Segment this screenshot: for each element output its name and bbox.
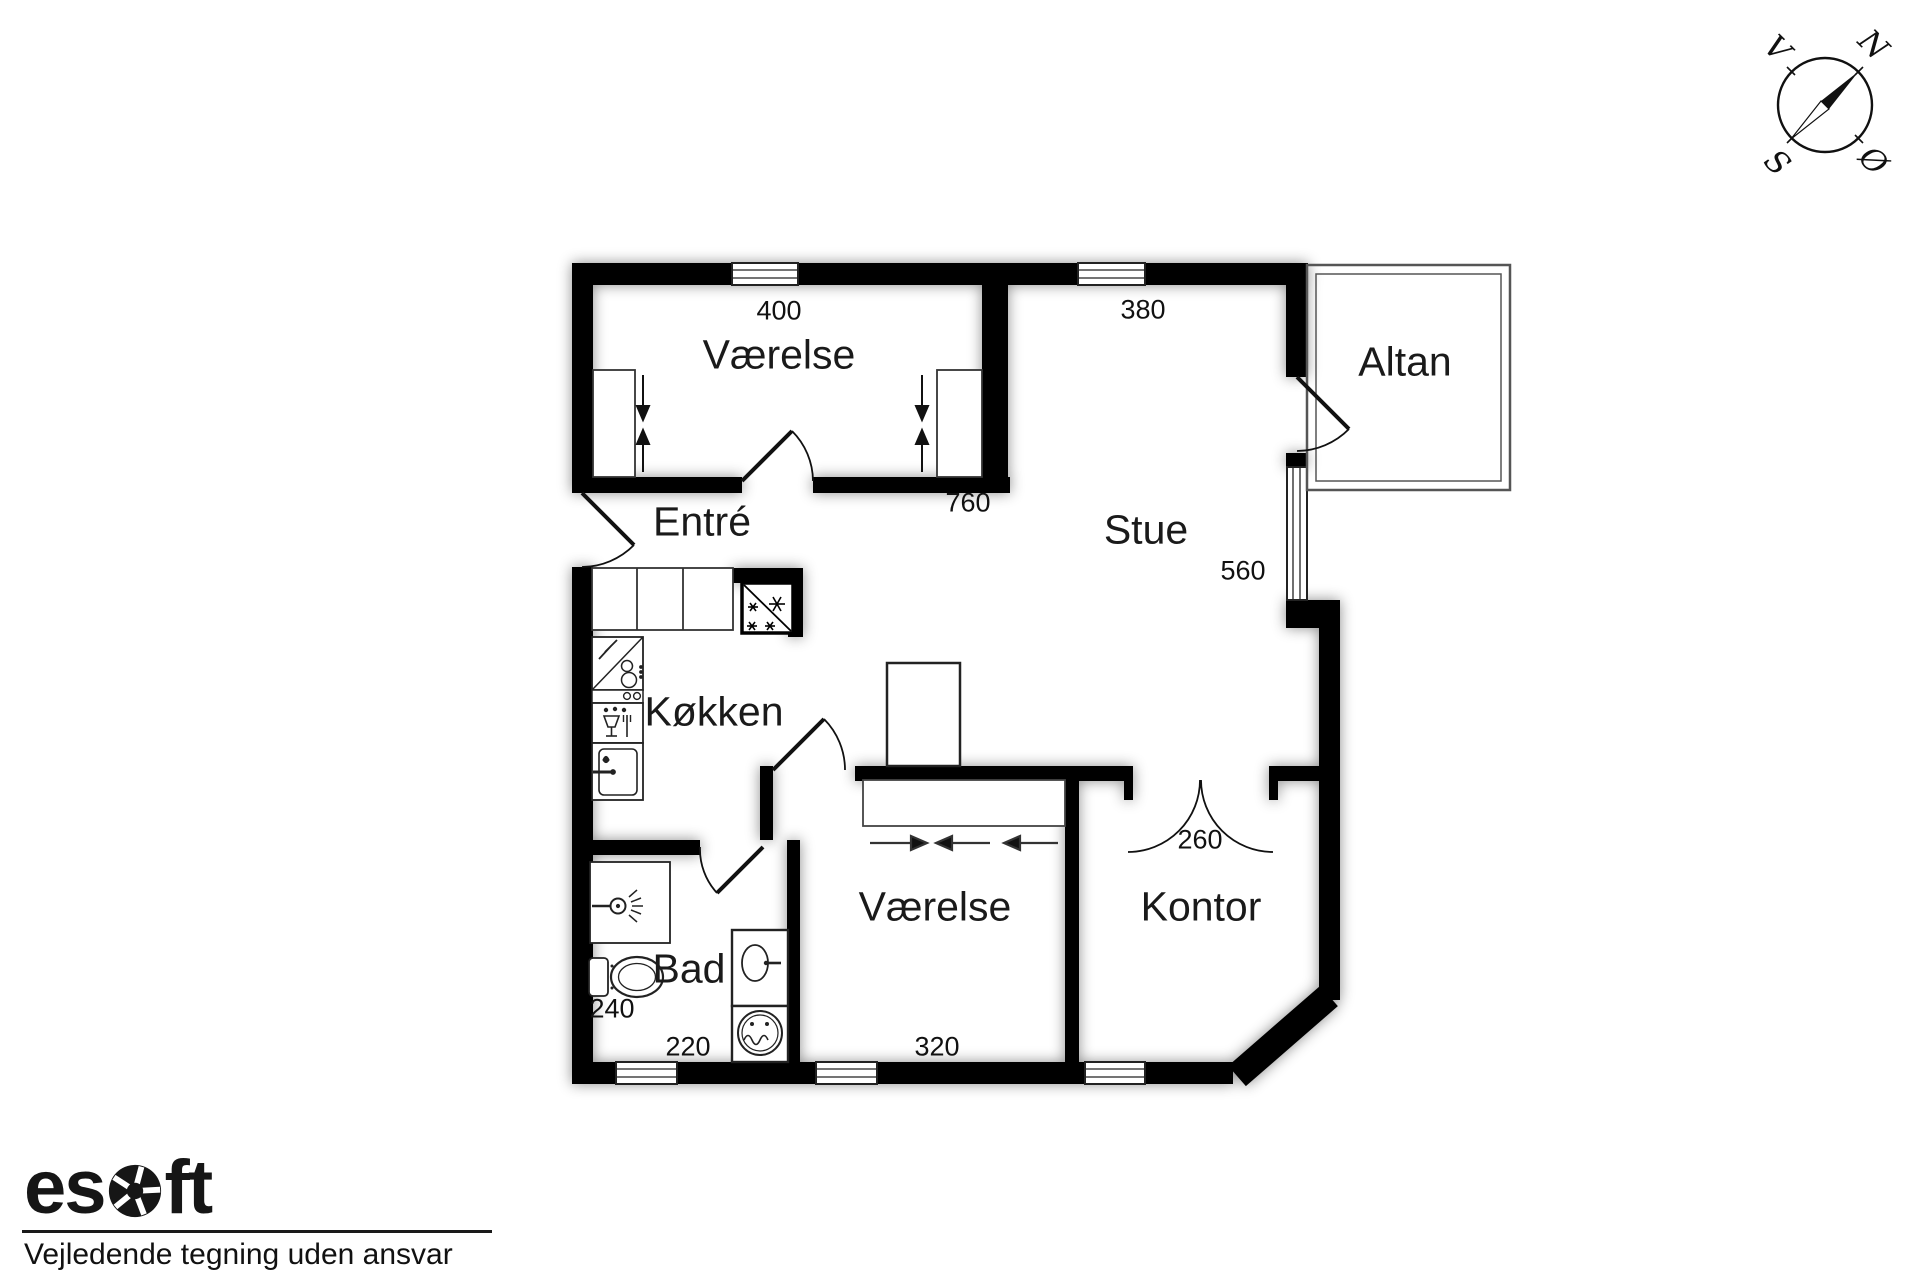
wall-right-lower	[1319, 628, 1340, 1000]
door-swing-vaerelse-bottom	[773, 719, 845, 770]
logo-text-prefix: es	[24, 1150, 105, 1226]
shaft-box	[887, 663, 960, 766]
wardrobe-arrows-icon	[637, 375, 928, 472]
wall-vaerelse-kontor-divider	[1065, 766, 1079, 1062]
room-label-vaerelse-top: Værelse	[703, 332, 856, 379]
window	[616, 1062, 677, 1084]
room-label-altan: Altan	[1358, 339, 1451, 386]
esoft-logo: es ft	[24, 1150, 211, 1226]
stove-icon	[592, 637, 643, 690]
window	[816, 1062, 877, 1084]
aperture-icon	[106, 1162, 164, 1220]
wall-kontor-door-jamb-right	[1269, 766, 1278, 800]
footer-divider	[22, 1230, 492, 1233]
washing-machine-icon	[732, 1006, 788, 1062]
wall-bad-top	[588, 840, 700, 855]
wall-right-stue	[1286, 285, 1307, 377]
window	[1078, 263, 1145, 285]
wall-diagonal	[1237, 996, 1329, 1076]
wall-kontor-door-jamb-left	[1124, 766, 1133, 800]
sliding-door-panel	[863, 780, 1065, 826]
shower-icon	[590, 862, 670, 943]
room-label-vaerelse-bottom: Værelse	[859, 884, 1012, 931]
window	[1287, 467, 1307, 600]
dishwasher-icon	[592, 703, 643, 743]
dimension-bad-width: 240	[589, 994, 634, 1025]
wall-vaerelse-stue-divider	[982, 285, 1008, 493]
room-label-stue: Stue	[1104, 507, 1188, 554]
sliding-door-arrows-icon	[870, 836, 1058, 850]
door-swing-altan	[1297, 377, 1349, 451]
door-swing-entrance	[582, 493, 634, 567]
dimension-stue-depth: 560	[1220, 556, 1265, 587]
floorplan-drawing	[0, 0, 1920, 1280]
bathroom-sink-icon	[732, 930, 788, 1006]
dimension-vaerelse-top-length: 760	[945, 488, 990, 519]
dimension-vaerelse-bottom-width: 320	[914, 1032, 959, 1063]
room-label-koekken: Køkken	[645, 689, 784, 736]
compass-icon	[1778, 58, 1872, 152]
wall-mid-right	[1273, 766, 1330, 781]
room-label-kontor: Kontor	[1141, 884, 1262, 931]
window	[1085, 1062, 1145, 1084]
wall-top	[572, 263, 1308, 285]
room-label-bad: Bad	[653, 946, 726, 993]
window	[732, 263, 798, 285]
wall-right-jog	[1286, 600, 1340, 628]
wall-koekken-stub	[760, 766, 773, 840]
dimension-kontor-width: 260	[1177, 825, 1222, 856]
wall-mid-center	[855, 766, 1128, 781]
wardrobe	[593, 370, 635, 477]
fridge-freezer-icon	[742, 583, 793, 633]
wardrobe	[937, 370, 982, 477]
compass-needle-south	[1791, 101, 1829, 139]
dimension-stue-width: 380	[1120, 295, 1165, 326]
counter-cell	[592, 690, 643, 703]
wall-vaerelse-top-south-left	[592, 477, 742, 493]
compass-needle-north	[1821, 71, 1859, 109]
dimension-bad-length: 220	[665, 1032, 710, 1063]
wall-left-upper	[572, 263, 593, 493]
dimension-vaerelse-top-width: 400	[756, 296, 801, 327]
wall-right-stub	[1286, 453, 1307, 467]
door-swing-bad	[700, 847, 763, 893]
logo-text-suffix: ft	[165, 1150, 212, 1226]
floorplan-page: Værelse Stue Altan Entré Køkken Værelse …	[0, 0, 1920, 1280]
kitchen-counter	[592, 568, 733, 630]
door-swing-vaerelse-top	[742, 431, 813, 481]
wardrobes	[593, 370, 982, 477]
room-label-entre: Entré	[653, 499, 751, 546]
kitchen-sink-icon	[592, 743, 643, 800]
disclaimer-text: Vejledende tegning uden ansvar	[24, 1238, 453, 1272]
